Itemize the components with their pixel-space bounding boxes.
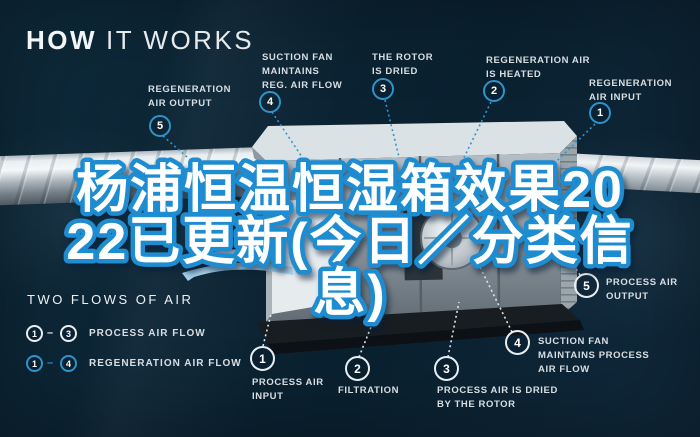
overlay-line-1: 杨浦恒温恒湿箱效果20	[76, 161, 624, 219]
overlay-headline: 杨浦恒温恒湿箱效果20 22已更新(今日／分类信 息)	[0, 0, 700, 437]
infographic-canvas: HOWIT WORKS REGENERATION AIR OUTPUT 5 SU…	[0, 0, 700, 437]
overlay-line-3: 息)	[313, 265, 386, 323]
overlay-line-2: 22已更新(今日／分类信	[66, 213, 633, 271]
